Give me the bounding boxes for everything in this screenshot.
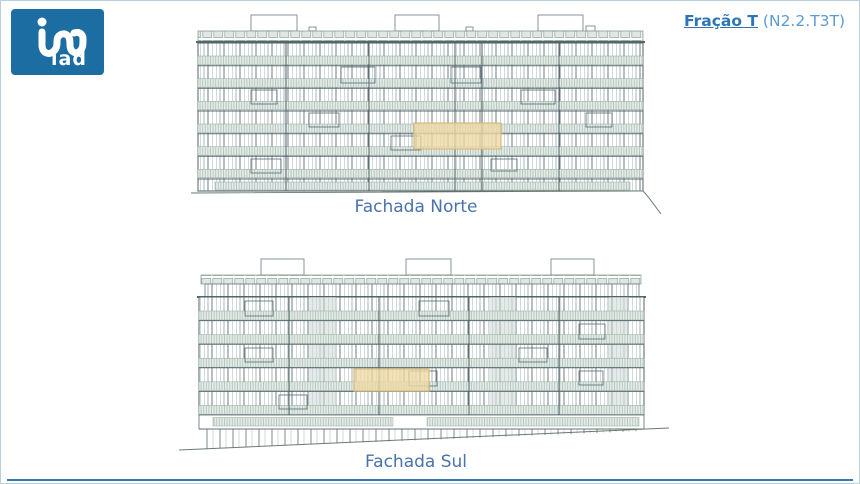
fraction-link[interactable]: Fração T xyxy=(684,12,758,30)
south-facade-label: Fachada Sul xyxy=(171,452,661,472)
north-facade-label: Fachada Norte xyxy=(181,197,651,217)
sheet-header: Fração T (N2.2.T3T) xyxy=(684,12,845,30)
highlighted-unit-north xyxy=(414,123,501,149)
iad-logo: iad xyxy=(11,9,104,75)
fraction-code: (N2.2.T3T) xyxy=(763,12,845,30)
north-roof-structures xyxy=(251,15,595,31)
south-roof-structures xyxy=(261,259,594,275)
plan-sheet: iad Fração T (N2.2.T3T) xyxy=(0,0,860,484)
bottom-rule xyxy=(7,479,853,481)
highlighted-unit-south xyxy=(354,369,429,391)
south-facade-drawing xyxy=(179,257,669,475)
north-facade-drawing xyxy=(191,9,663,221)
iad-logo-text: iad xyxy=(51,48,87,70)
